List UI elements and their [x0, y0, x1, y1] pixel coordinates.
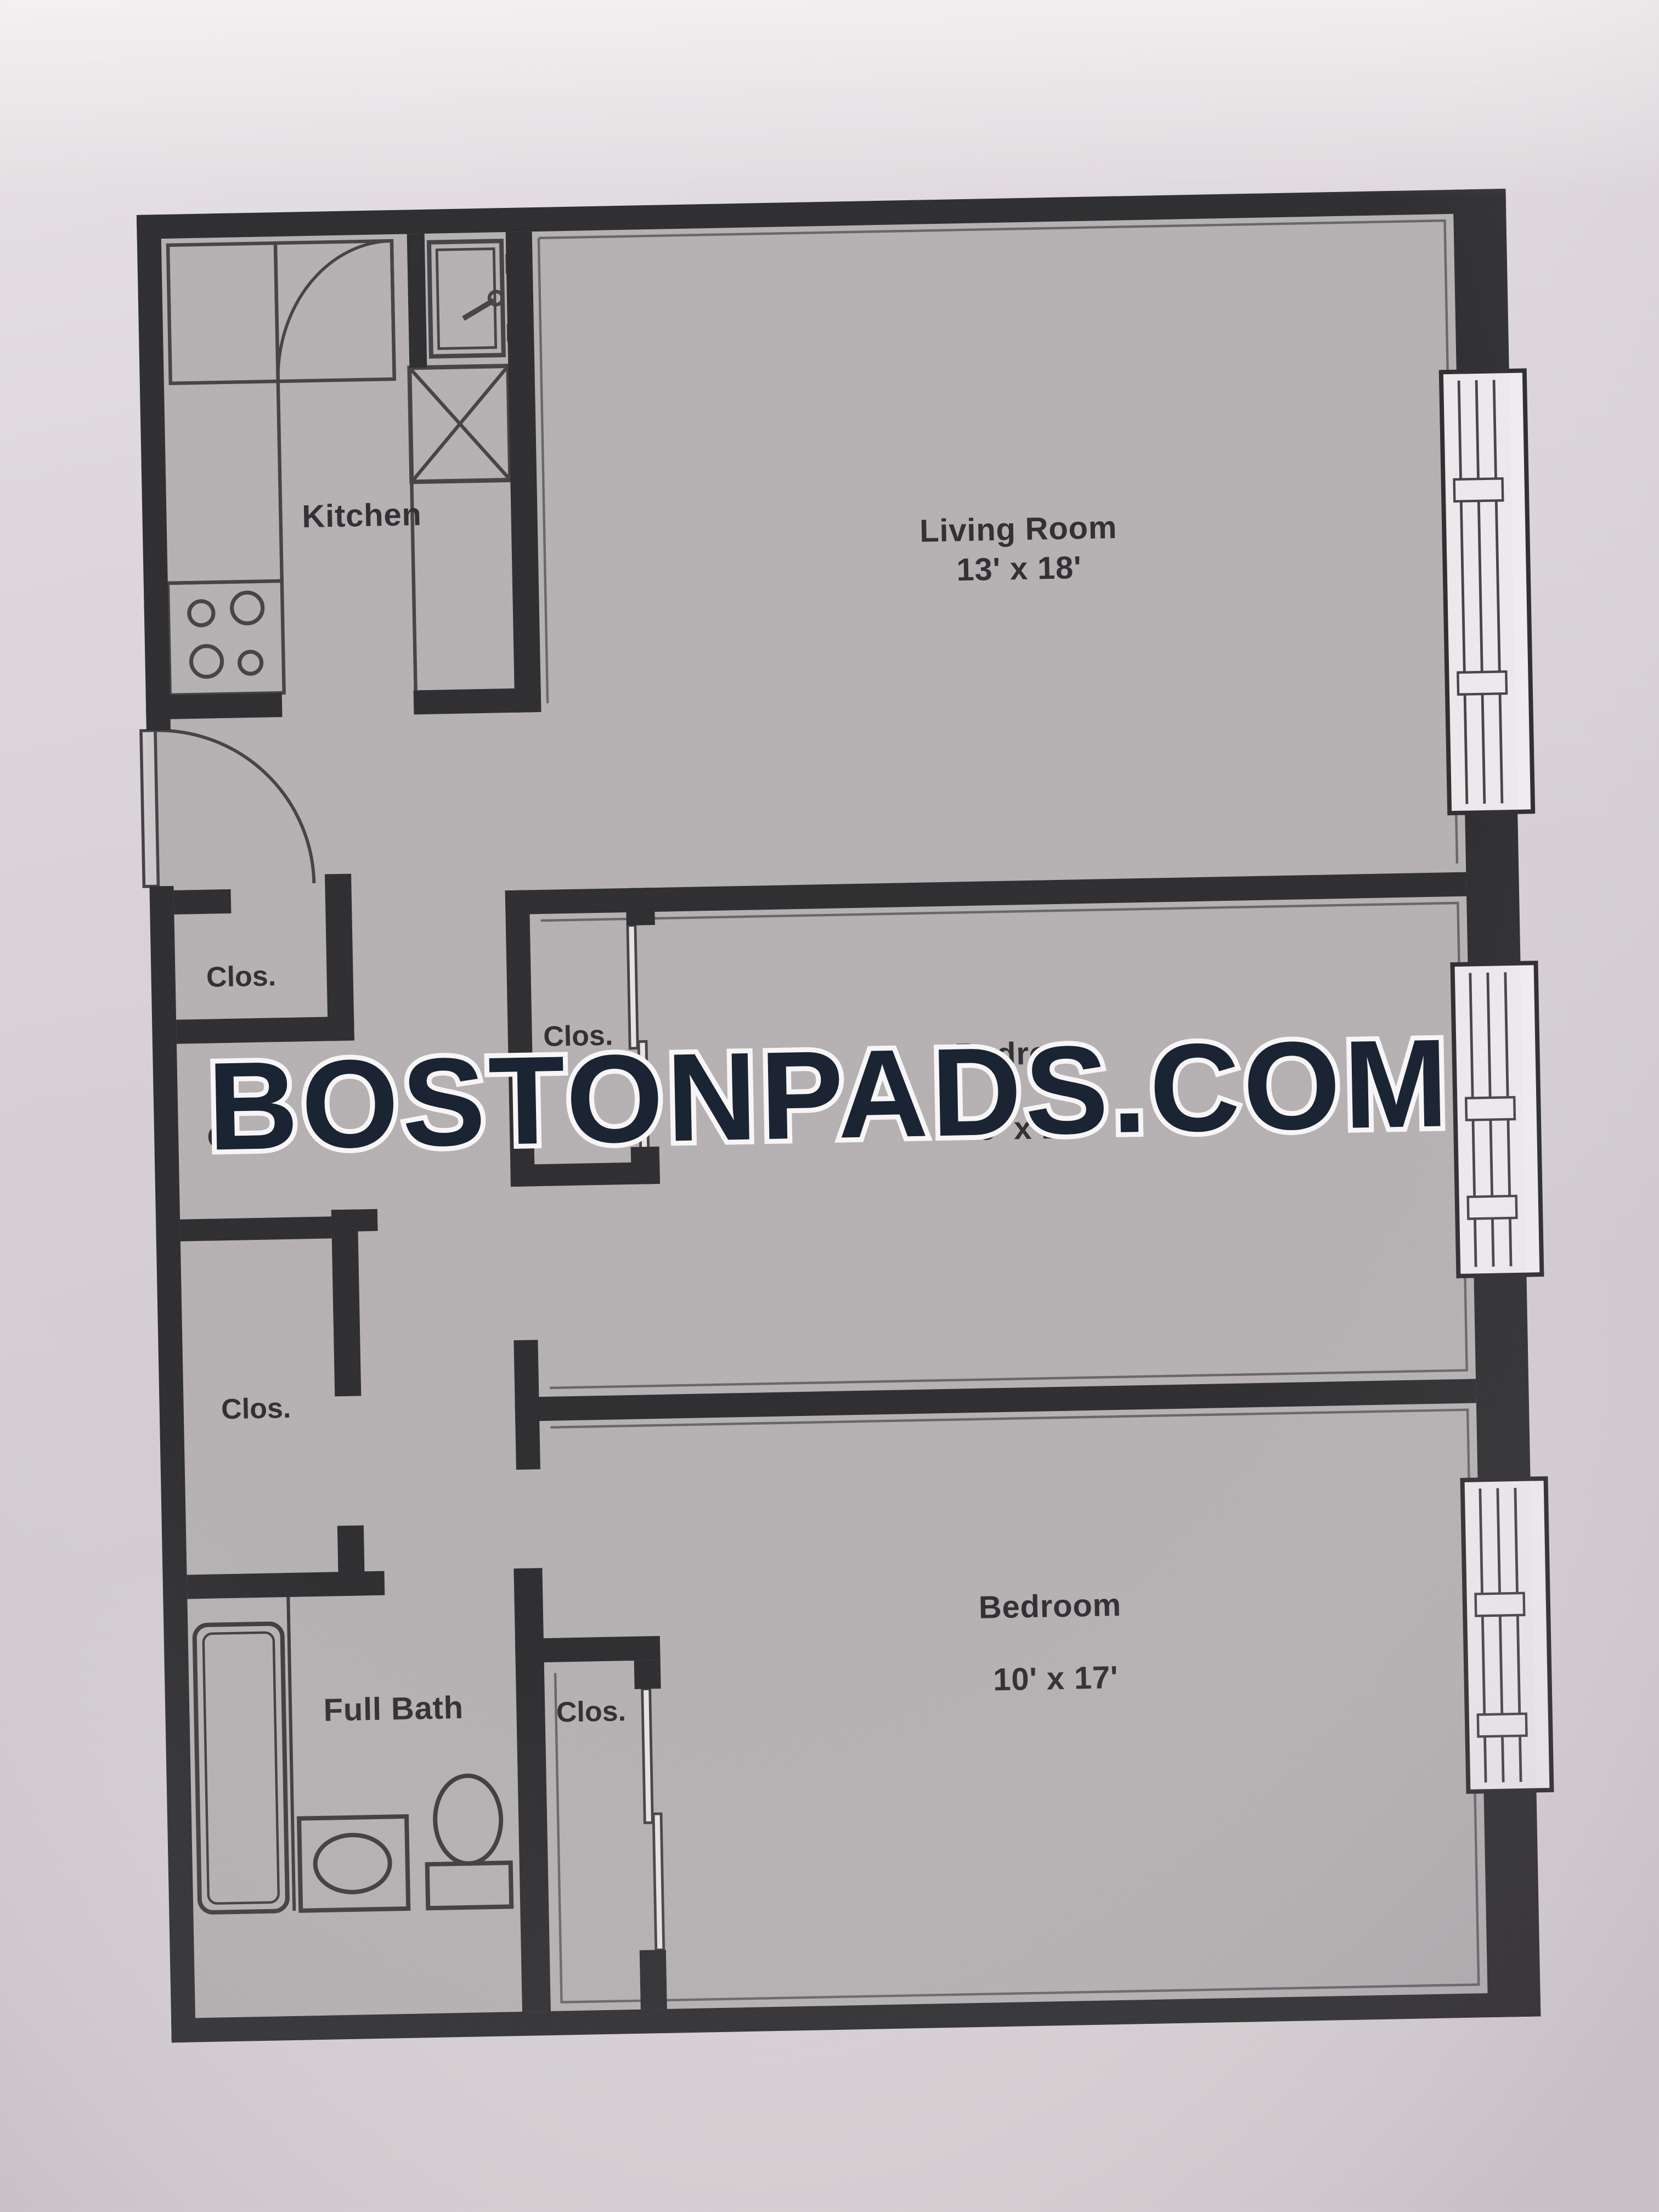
photo-vignette [0, 0, 1659, 2212]
floorplan-svg: Kitchen Living Room 13' x 18' Bedroom 9'… [0, 0, 1659, 2212]
floorplan-photo: Kitchen Living Room 13' x 18' Bedroom 9'… [0, 0, 1659, 2212]
